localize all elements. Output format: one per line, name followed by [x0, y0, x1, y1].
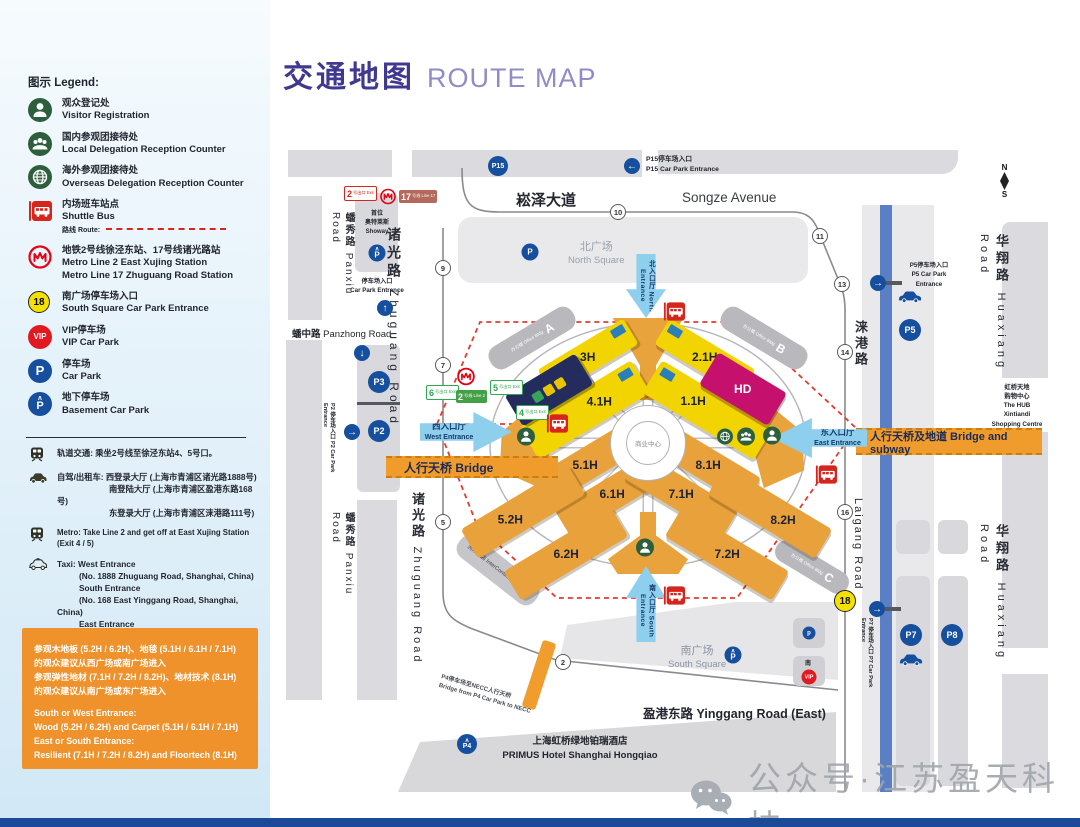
huaxiang-road-label: 华翔路 Huaxiang Road [977, 524, 1011, 674]
north-square-carpark-marker: P [522, 244, 539, 261]
legend-zh: VIP停车场 [62, 325, 106, 336]
visitor-registration-icon [517, 428, 535, 451]
p-ent-en: Car Park Entrance [350, 287, 404, 294]
legend-item-local-delegation: 国内参观团接待处 Local Delegation Reception Coun… [28, 132, 256, 157]
legend-item-vip: VIP VIP停车场 VIP Car Park [28, 325, 256, 350]
east-bridge-banner: 人行天桥及地道 Bridge and subway [856, 428, 1042, 455]
south-entrance-zh: 南入口厅 [647, 584, 654, 613]
hall-label: 6.2H [553, 547, 578, 561]
panzhong-road-label: 蟠中路 Panzhong Road [292, 326, 391, 340]
car-park-letter: P [28, 359, 52, 383]
note-drive: 自驾/出租车: 西登录大厅 (上海市青浦区诸光路1888号) 南登陆大厅 (上海… [28, 471, 260, 519]
square-en: North Square [568, 255, 625, 266]
gate-number: 14 [841, 348, 849, 357]
gate-18: 18 [834, 590, 856, 612]
west-entrance-en: West Entrance [425, 434, 474, 441]
metro-exit4-badge: 4号出口 Exit [516, 405, 549, 420]
road-en: Yinggang Road (East) [697, 707, 826, 721]
gate-9: 9 [435, 260, 451, 276]
road-zh: 蟠秀路 [343, 212, 354, 248]
p-label: P5 [904, 326, 915, 335]
drive-line2: 南登陆大厅 (上海市青浦区盈港东路168号) [57, 484, 252, 506]
entrance-notice-box: 参观木地板 (5.2H / 6.2H)、地毯 (5.1H / 6.1H / 7.… [22, 628, 258, 769]
badge-num: 6 [429, 388, 434, 398]
compass-n: N [1002, 163, 1008, 172]
notice-en2: Wood (5.2H / 6.2H) and Carpet (5.1H / 6.… [34, 720, 246, 734]
carpark-down-arrow-icon: ↓ [354, 345, 370, 361]
p-label: P [527, 248, 532, 256]
notice-zh3: 参观弹性地材 (7.1H / 7.2H / 8.2H)、地材技术 (8.1H) [34, 670, 246, 684]
metro-exit5-badge: 5号出口 Exit [490, 380, 523, 395]
exhibitor-logo [553, 376, 567, 390]
legend-zh: 海外参观团接待处 [62, 165, 138, 176]
legend-en: Metro Line 2 East Xujing Station [62, 257, 207, 268]
gate-number: 7 [441, 361, 445, 370]
vip-marker: VIP [802, 670, 817, 685]
p-ent-zh: 停车场入口 [362, 278, 393, 285]
zhuguang-road-label: 诸光路 Zhuguang Road [408, 492, 427, 692]
hall-label: 8.2H [770, 513, 795, 527]
gate-18-icon: 18 [28, 291, 52, 315]
east-entrance-zh: 东入口厅 [820, 427, 854, 437]
hub-line: The HUB [1004, 402, 1031, 409]
p-label: P8 [946, 631, 957, 640]
note-metro-en: Metro: Take Line 2 and get off at East X… [28, 527, 260, 550]
p-ent-zh: P15停车场入口 [646, 156, 692, 163]
car-park-icon: P [28, 359, 52, 383]
route-map-page: 图示 Legend: 观众登记处 Visitor Registration 国内… [0, 0, 1080, 827]
showay-en: Showay [366, 229, 389, 235]
wechat-icon [688, 778, 734, 823]
metro-logo-icon [28, 245, 52, 269]
shuttle-bus-icon [663, 585, 685, 612]
hotel-en: PRIMUS Hotel Shanghai Hongqiao [502, 750, 657, 761]
metro-logo-icon [457, 368, 475, 391]
rail-note-text: 轨道交通: 乘坐2号线至徐泾东站4、5号口。 [57, 447, 217, 459]
road-zh: 蟠秀路 [343, 512, 354, 548]
notice-en1: South or West Entrance: [34, 706, 246, 720]
carpark-up-arrow-icon: ↑ [377, 300, 393, 316]
badge-txt: 号出口 Exit [525, 410, 546, 415]
gate-2: 2 [555, 654, 571, 670]
car-icon-blue [897, 290, 923, 308]
p4-bridge-label: P4停车场至NECC人行天桥Bridge from P4 Car Park to… [437, 673, 534, 717]
shuttle-bus-icon [663, 301, 685, 328]
local-delegation-icon [28, 132, 52, 156]
metro-exit6-badge: 6号出口 Exit [426, 385, 459, 400]
yinggang-road-label: 盈港东路 Yinggang Road (East) [643, 703, 826, 722]
songze-avenue-zh: 崧泽大道 [516, 189, 576, 210]
overseas-delegation-icon [717, 429, 733, 450]
south-chip-label: 南 [805, 658, 811, 667]
route-label: 路线 Route: [62, 227, 100, 234]
hall-label: 5.1H [572, 458, 597, 472]
taxi-line3: South Entrance [57, 583, 140, 593]
page-title: 交通地图ROUTE MAP [283, 52, 597, 96]
gate-10: 10 [610, 204, 626, 220]
legend-en: South Square Car Park Entrance [62, 303, 209, 314]
p15-entrance-label: P15停车场入口P15 Car Park Entrance [646, 155, 719, 174]
p15-arrow-icon: ← [624, 158, 640, 174]
taxi-line2: (No. 1888 Zhuguang Road, Shanghai, China… [57, 571, 254, 581]
south-entrance-arrow: 南入口厅 South Entrance [626, 566, 666, 642]
notice-zh2: 的观众建议从西广场或南广场进入 [34, 656, 246, 670]
legend-items: 观众登记处 Visitor Registration 国内参观团接待处 Loca… [28, 98, 256, 417]
p5-entrance-label: P5停车场入口P5 Car Park Entrance [898, 261, 960, 289]
gate-14: 14 [837, 344, 853, 360]
zhuguang-road-label: 诸光路 Zhuguang Road [384, 227, 404, 487]
gate-7: 7 [435, 357, 451, 373]
square-zh: 南广场 [681, 645, 714, 657]
legend-zh: 南广场停车场入口 [62, 291, 138, 302]
south-square-label: 南广场South Square [668, 642, 726, 670]
road-en: Zhuguang Road [411, 547, 423, 665]
domotex-logo [617, 367, 634, 382]
train-icon [28, 447, 48, 463]
hall-label: 7.2H [714, 547, 739, 561]
gate-5: 5 [435, 514, 451, 530]
road-en: Panzhong Road [323, 329, 391, 340]
panxiu-road-label: 蟠秀路 Panxiu Road [330, 212, 356, 322]
domotex-logo [610, 324, 627, 339]
legend-item-visitor-registration: 观众登记处 Visitor Registration [28, 98, 256, 123]
business-center-label: 商业中心 [635, 438, 661, 448]
transit-notes: 轨道交通: 乘坐2号线至徐泾东站4、5号口。 自驾/出租车: 西登录大厅 (上海… [28, 447, 260, 642]
metro-exit2-badge: 2号出口 Exit [344, 186, 377, 201]
car-icon [28, 471, 48, 487]
p-label: P3 [373, 378, 384, 387]
badge-txt: 号出口 Exit [435, 390, 456, 395]
hub-line: 购物中心 [1004, 393, 1029, 400]
exhibitor-logo [542, 383, 556, 397]
shuttle-bus-icon [28, 199, 52, 223]
notice-en3: East or South Entrance: [34, 734, 246, 748]
p7-arrow-icon: → [869, 601, 885, 617]
east-entrance-en: East Entrance [814, 440, 861, 447]
parking-block [938, 520, 968, 554]
west-bridge-label: 人行天桥 Bridge [404, 459, 493, 476]
legend-item-gate18: 18 南广场停车场入口 South Square Car Park Entran… [28, 291, 256, 316]
elevated-road-stripe [880, 205, 892, 792]
panxiu-road-label: 蟠秀路 Panxiu Road [330, 512, 356, 632]
road-zh: 盈港东路 [643, 707, 693, 721]
legend-en2: Metro Line 17 Zhuguang Road Station [62, 270, 233, 281]
p-label: P4 [463, 743, 472, 750]
drive-line3: 东登录大厅 (上海市青浦区涞港路111号) [57, 508, 254, 518]
compass-needle-icon [1000, 172, 1009, 190]
city-block [357, 500, 397, 700]
legend-zh: 内场班车站点 [62, 199, 119, 210]
hotel-zh: 上海虹桥绿地铂瑞酒店 [532, 736, 627, 747]
p-label: P [374, 251, 379, 259]
metro-line2-badge: 2号线 Line 2 [456, 390, 487, 403]
p2-entrance-label: P2 停车场入口 P2 Car Park Entrance [322, 403, 336, 473]
gate-number: 9 [441, 264, 445, 273]
legend-zh: 停车场 [62, 359, 91, 370]
metro-note-text: Metro: Take Line 2 and get off at East X… [57, 527, 260, 550]
p-label: p [807, 630, 811, 636]
office-label: 办公楼 Office Bldg [510, 329, 544, 353]
gate-number: 13 [838, 280, 846, 289]
p-label: P [730, 653, 735, 661]
train-icon [28, 527, 48, 543]
hall-label: 3H [580, 350, 595, 364]
compass-s: S [1002, 190, 1007, 199]
note-rail: 轨道交通: 乘坐2号线至徐泾东站4、5号口。 [28, 447, 260, 463]
gate-number: 16 [841, 508, 849, 517]
notice-zh4: 的观众建议从南广场或东广场进入 [34, 684, 246, 698]
visitor-registration-icon [636, 539, 654, 562]
vip-text: VIP [28, 325, 52, 349]
hall-label: 1.1H [681, 394, 706, 408]
badge-txt: 号线 Line 2 [464, 394, 485, 399]
road-zh: 诸光路 [410, 492, 425, 540]
badge-num: 5 [493, 383, 498, 393]
title-en: ROUTE MAP [427, 63, 597, 93]
domotex-logo [659, 367, 676, 382]
p-label: P2 [373, 427, 384, 436]
badge-txt: 号出口 Exit [353, 191, 374, 196]
legend-zh: 观众登记处 [62, 98, 110, 109]
legend-item-metro: 地铁2号线徐泾东站、17号线诸光路站 Metro Line 2 East Xuj… [28, 245, 256, 282]
badge-num: 4 [519, 408, 524, 418]
p7-entrance-stem [885, 607, 901, 611]
vip-icon: VIP [28, 325, 52, 349]
notice-en4: Resilient (7.1H / 7.2H / 8.2H) and Floor… [34, 748, 246, 762]
songze-avenue-en: Songze Avenue [682, 190, 776, 205]
hall-label: 6.1H [599, 487, 624, 501]
laigang-road-label-en: Laigang Road [852, 498, 864, 598]
gate-18-number: 18 [28, 291, 50, 313]
hub-center: 商业中心 [626, 421, 670, 465]
square-zh: 北广场 [580, 241, 613, 253]
p4-marker: ʌP4 [457, 734, 477, 754]
legend-en: Local Delegation Reception Counter [62, 144, 226, 155]
showay-zh1: 首位 [371, 211, 383, 217]
hub-line: Shopping Centre [992, 421, 1043, 428]
west-bridge-banner: 人行天桥 Bridge [386, 456, 558, 478]
p5-marker: P5 [899, 319, 921, 341]
gate-number: 2 [561, 658, 565, 667]
bottom-bar [0, 818, 1080, 827]
legend-en: Visitor Registration [62, 110, 149, 121]
road-zh: 华翔路 [994, 524, 1009, 575]
local-delegation-icon [737, 428, 755, 451]
legend-zh: 国内参观团接待处 [62, 132, 138, 143]
p-ent-zh: P2 停车场入口 [329, 403, 335, 439]
city-block [286, 340, 322, 700]
hall-label: 7.1H [668, 487, 693, 501]
hall-label: 4.1H [587, 394, 612, 408]
north-entrance-zh: 北入口厅 [647, 260, 654, 289]
hall-label: 5.2H [497, 513, 522, 527]
north-square-block [458, 217, 808, 283]
overseas-delegation-icon [28, 165, 52, 189]
road-zh: 华翔路 [994, 234, 1009, 285]
west-entrance-arrow: 西入口厅West Entrance [420, 412, 512, 452]
showay-label: 首位奥特莱斯Showay [357, 210, 397, 237]
shuttle-bus-icon [546, 413, 568, 440]
laigang-road-label-zh: 涞港路 [851, 320, 870, 380]
car-icon-blue [898, 653, 924, 671]
gate-number: 5 [441, 518, 445, 527]
legend-en: Shuttle Bus [62, 211, 115, 222]
drive-line1: 自驾/出租车: 西登录大厅 (上海市青浦区诸光路1888号) [57, 472, 257, 482]
legend-item-car-park: P 停车场 Car Park [28, 359, 256, 384]
gate-number: 18 [839, 596, 850, 607]
basement-car-park-icon: ʌ P [28, 392, 52, 416]
p7-marker: P7 [900, 624, 922, 646]
road-block-p15 [412, 150, 642, 177]
east-bridge-label: 人行天桥及地道 Bridge and subway [870, 428, 1042, 456]
metro-logo-icon [380, 189, 396, 210]
watermark-text: 公众号·江苏盈天科技 [748, 752, 1080, 827]
legend-en: Basement Car Park [62, 405, 149, 416]
exhibitor-logo [531, 390, 545, 404]
visitor-registration-icon [763, 427, 781, 450]
p2-marker: P2 [368, 420, 390, 442]
p-label: P15 [492, 163, 504, 170]
primus-hotel-label: 上海虹桥绿地铂瑞酒店PRIMUS Hotel Shanghai Hongqiao [485, 735, 675, 763]
road-en: Laigang Road [852, 498, 864, 591]
badge-num: 2 [458, 392, 463, 402]
legend-item-shuttle-bus: 内场班车站点 Shuttle Bus 路线 Route: [28, 199, 256, 236]
p-block-divider [357, 402, 400, 405]
compass: N S [1000, 163, 1009, 199]
legend-en: Car Park [62, 371, 101, 382]
road-zh: 涞港路 [853, 320, 868, 368]
notice-zh1: 参观木地板 (5.2H / 6.2H)、地毯 (5.1H / 6.1H / 7.… [34, 642, 246, 656]
p2-arrow-icon: → [344, 424, 360, 440]
parking-block [896, 520, 930, 554]
showay-carpark-entrance-label: 停车场入口Car Park Entrance [348, 277, 406, 296]
p-ent-en: P15 Car Park Entrance [646, 166, 719, 173]
showay-zh2: 奥特莱斯 [365, 220, 389, 226]
p5-arrow-icon: → [870, 275, 886, 291]
route-dashed-line [106, 228, 226, 230]
gate-number: 11 [816, 232, 824, 241]
road-zh: 蟠中路 [292, 329, 321, 340]
basement-letter: P [36, 401, 43, 412]
p-ent-zh: P5停车场入口 [910, 262, 949, 269]
road-block [288, 150, 392, 177]
badge-num: 17 [401, 192, 411, 202]
square-en: South Square [668, 659, 726, 670]
legend-zh: 地下停车场 [62, 392, 110, 403]
badge-txt: 号线 Line 17 [412, 194, 435, 199]
west-entrance-zh: 西入口厅 [432, 421, 466, 431]
p-ent-en: P5 Car Park Entrance [912, 271, 947, 287]
legend-heading: 图示 Legend: [28, 74, 99, 90]
legend-zh: 地铁2号线徐泾东站、17号线诸光路站 [62, 245, 220, 256]
small-p-marker: p [803, 627, 816, 640]
shuttle-bus-icon [815, 464, 837, 491]
south-square-basement-marker: ʌP [725, 647, 742, 664]
gate-16: 16 [837, 504, 853, 520]
taxi-icon [28, 558, 48, 574]
vip-label: VIP [805, 674, 814, 680]
basement-car-park-marker: ʌP [369, 245, 386, 262]
p-ent-zh: P7 停车场入口 [867, 618, 873, 654]
city-block [288, 196, 322, 320]
legend-divider [26, 437, 246, 438]
hub-line: Xintiandi [1004, 411, 1031, 418]
office-label: 办公楼 Office Bldg [790, 552, 824, 576]
legend-en: VIP Car Park [62, 337, 119, 348]
north-square-label: 北广场North Square [568, 238, 625, 266]
badge-num: 2 [347, 189, 352, 199]
hall-label: 8.1H [695, 458, 720, 472]
huaxiang-road-label: 华翔路 Huaxiang Road [977, 234, 1011, 384]
watermark: 公众号·江苏盈天科技 [688, 752, 1080, 827]
legend-item-basement-car-park: ʌ P 地下停车场 Basement Car Park [28, 392, 256, 417]
visitor-registration-icon [28, 98, 52, 122]
gate-11: 11 [812, 228, 828, 244]
hd-logo: HD [734, 382, 751, 396]
title-zh: 交通地图 [283, 61, 415, 94]
legend-item-overseas-delegation: 海外参观团接待处 Overseas Delegation Reception C… [28, 165, 256, 190]
taxi-line1: Taxi: West Entrance [57, 559, 136, 569]
hub-xintiandi-label: 虹桥天地购物中心The HUBXintiandiShopping Centre [988, 383, 1046, 429]
badge-txt: 号出口 Exit [499, 385, 520, 390]
gate-number: 10 [614, 208, 622, 217]
p3-marker: P3 [368, 371, 390, 393]
office-label: 办公楼 Office Bldg [742, 323, 776, 347]
hub-line: 虹桥天地 [1004, 384, 1029, 391]
p8-marker: P8 [941, 624, 963, 646]
p15-marker: P15 [488, 156, 508, 176]
metro-line17-badge: 17号线 Line 17 [399, 190, 437, 203]
gate-13: 13 [834, 276, 850, 292]
p7-entrance-label: P7 停车场入口 P7 Car Park Entrance [860, 618, 874, 688]
taxi-line4: (No. 168 East Yinggang Road, Shanghai, C… [57, 595, 238, 617]
legend-en: Overseas Delegation Reception Counter [62, 178, 244, 189]
legend-panel: 图示 Legend: 观众登记处 Visitor Registration 国内… [0, 0, 270, 827]
p-label: P7 [905, 631, 916, 640]
